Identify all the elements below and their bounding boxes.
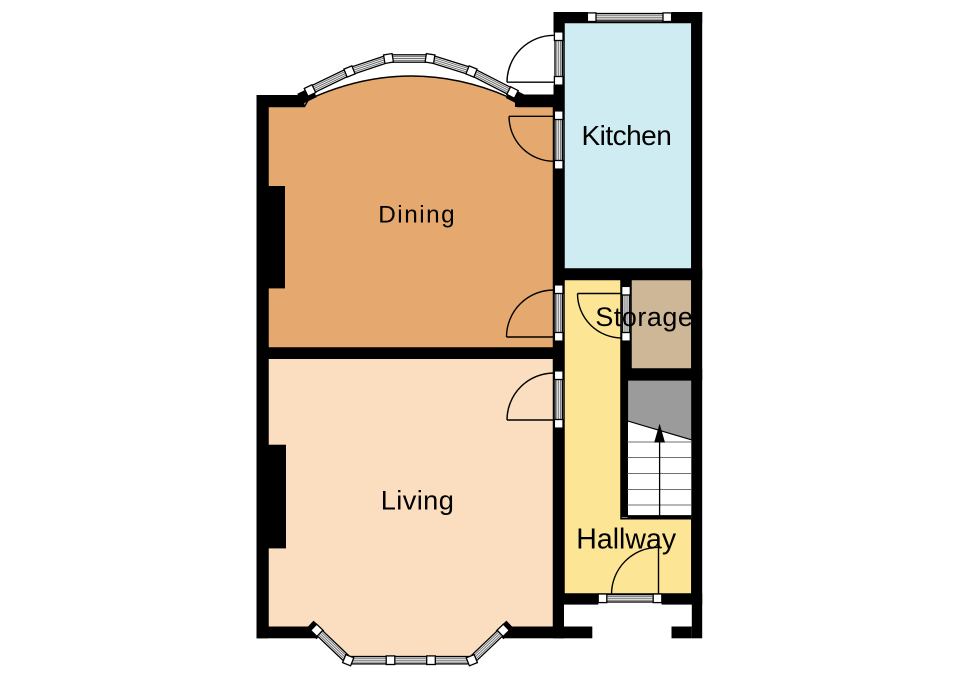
svg-text:Living: Living <box>381 484 454 515</box>
svg-text:Storage: Storage <box>595 302 693 332</box>
svg-text:Hallway: Hallway <box>576 523 677 555</box>
svg-text:Dining: Dining <box>378 202 456 229</box>
svg-text:Kitchen: Kitchen <box>581 120 671 151</box>
